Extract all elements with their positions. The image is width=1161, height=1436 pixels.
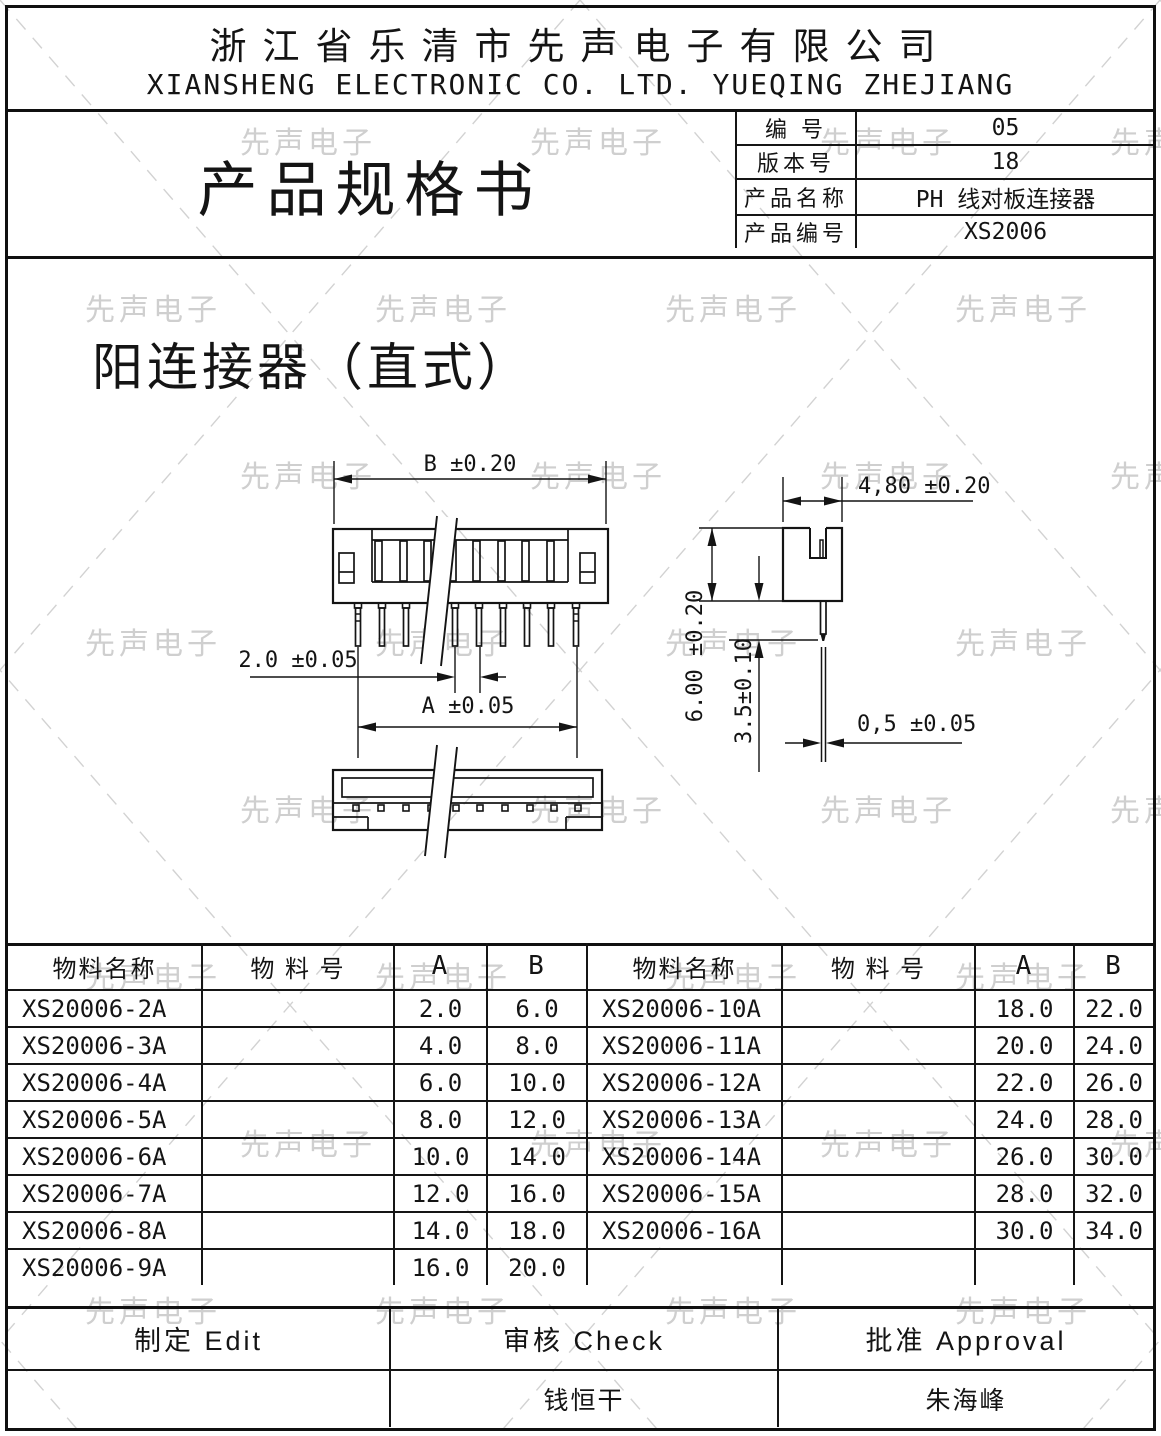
table-row: XS20006-5A8.012.0XS20006-13A24.028.0 [8,1101,1153,1138]
part-b-cell: 8.0 [487,1027,587,1064]
table-row: XS20006-3A4.08.0XS20006-11A20.024.0 [8,1027,1153,1064]
pin-contacts [353,805,581,811]
part-pn-cell [202,990,394,1027]
part-b-cell: 12.0 [487,1101,587,1138]
front-view [333,516,608,666]
part-a-cell: 28.0 [975,1175,1074,1212]
part-pn-cell [202,1138,394,1175]
part-b-cell: 16.0 [487,1175,587,1212]
part-a-cell: 30.0 [975,1212,1074,1249]
approval-signature: 朱海峰 [778,1370,1153,1427]
edit-signature [8,1370,390,1427]
part-name-cell: XS20006-7A [8,1175,202,1212]
dim-pitch: 2.0 ±0.05 [238,648,357,673]
dim-side-height: 6.00 ±0.20 [683,590,708,722]
table-row: 版本号 18 [736,145,1154,179]
part-b-cell: 20.0 [487,1249,587,1285]
part-name-cell [587,1249,782,1285]
part-name-cell: XS20006-12A [587,1064,782,1101]
pin-lead [822,647,826,762]
drawing-section-title: 阳连接器（直式） [92,326,532,400]
part-name-cell: XS20006-6A [8,1138,202,1175]
part-name-cell: XS20006-14A [587,1138,782,1175]
part-b-cell: 22.0 [1074,990,1153,1027]
part-pn-cell [202,1027,394,1064]
approval-label: 批准 Approval [778,1308,1153,1370]
col-header-b: B [1074,943,1153,990]
part-a-cell: 24.0 [975,1101,1074,1138]
table-row: XS20006-6A10.014.0XS20006-14A26.030.0 [8,1138,1153,1175]
table-row: 制定 Edit 审核 Check 批准 Approval [8,1308,1153,1370]
part-name-cell: XS20006-11A [587,1027,782,1064]
table-row: XS20006-9A16.020.0 [8,1249,1153,1285]
dim-pin-width: 0,5 ±0.05 [857,712,976,737]
document-title: 产品规格书 [150,142,590,229]
part-pn-cell [782,1175,975,1212]
part-a-cell: 10.0 [394,1138,487,1175]
part-b-cell [1074,1249,1153,1285]
part-pn-cell [202,1101,394,1138]
table-row: XS20006-2A2.06.0XS20006-10A18.022.0 [8,990,1153,1027]
part-a-cell [975,1249,1074,1285]
part-b-cell: 6.0 [487,990,587,1027]
part-name-cell: XS20006-2A [8,990,202,1027]
contact-slots [375,541,554,581]
part-pn-cell [202,1175,394,1212]
part-b-cell: 32.0 [1074,1175,1153,1212]
part-a-cell: 16.0 [394,1249,487,1285]
part-b-cell: 14.0 [487,1138,587,1175]
part-pn-cell [782,1249,975,1285]
info-value: 05 [856,112,1154,145]
info-value: 18 [856,145,1154,179]
dim-pin-length: 3.5±0.10 [732,638,757,744]
table-row: 编 号 05 [736,112,1154,145]
part-a-cell: 4.0 [394,1027,487,1064]
spec-sheet-page: 先声电子先声电子先声电子先声电子先声电子先声电子先声电子先声电子先声电子先声电子… [0,0,1161,1436]
part-pn-cell [782,1101,975,1138]
part-name-cell: XS20006-5A [8,1101,202,1138]
approval-footer-table: 制定 Edit 审核 Check 批准 Approval 钱恒干 朱海峰 [8,1308,1153,1427]
col-header-b: B [487,943,587,990]
part-name-cell: XS20006-16A [587,1212,782,1249]
part-name-cell: XS20006-13A [587,1101,782,1138]
table-row: 产品编号 XS2006 [736,215,1154,248]
col-header-name: 物料名称 [8,943,202,990]
part-a-cell: 20.0 [975,1027,1074,1064]
company-name-cn: 浙江省乐清市先声电子有限公司 [0,16,1161,70]
part-name-cell: XS20006-8A [8,1212,202,1249]
side-latch-tabs [339,553,595,583]
info-value: XS2006 [856,215,1154,248]
part-a-cell: 18.0 [975,990,1074,1027]
parts-tbody: XS20006-2A2.06.0XS20006-10A18.022.0XS200… [8,990,1153,1285]
document-info-table: 编 号 05 版本号 18 产品名称 PH 线对板连接器 产品编号 XS2006 [735,112,1154,248]
dim-side-width: 4,80 ±0.20 [858,474,990,499]
table-row: 钱恒干 朱海峰 [8,1370,1153,1427]
info-label: 产品编号 [736,215,856,248]
side-view [783,526,842,763]
part-pn-cell [782,1212,975,1249]
check-signature: 钱恒干 [390,1370,778,1427]
part-a-cell: 22.0 [975,1064,1074,1101]
part-pn-cell [782,1027,975,1064]
dim-a: A ±0.05 [422,694,515,719]
divider-header [8,256,1153,259]
table-row: XS20006-4A6.010.0XS20006-12A22.026.0 [8,1064,1153,1101]
info-label: 版本号 [736,145,856,179]
part-b-cell: 18.0 [487,1212,587,1249]
part-pn-cell [202,1064,394,1101]
part-name-cell: XS20006-9A [8,1249,202,1285]
parts-dimension-table: 物料名称 物 料 号 A B 物料名称 物 料 号 A B XS20006-2A… [8,943,1153,1285]
dim-b: B ±0.20 [424,452,517,477]
col-header-a: A [975,943,1074,990]
info-value: PH 线对板连接器 [856,179,1154,215]
col-header-pn: 物 料 号 [782,943,975,990]
part-b-cell: 10.0 [487,1064,587,1101]
part-a-cell: 8.0 [394,1101,487,1138]
check-label: 审核 Check [390,1308,778,1370]
pins [355,608,579,646]
break-gap [421,516,457,666]
part-pn-cell [782,1064,975,1101]
col-header-pn: 物 料 号 [202,943,394,990]
part-b-cell: 28.0 [1074,1101,1153,1138]
part-name-cell: XS20006-4A [8,1064,202,1101]
part-b-cell: 30.0 [1074,1138,1153,1175]
part-name-cell: XS20006-3A [8,1027,202,1064]
part-a-cell: 6.0 [394,1064,487,1101]
part-pn-cell [202,1249,394,1285]
table-row: 产品名称 PH 线对板连接器 [736,179,1154,215]
col-header-a: A [394,943,487,990]
part-a-cell: 26.0 [975,1138,1074,1175]
break-gap [425,747,457,856]
info-label: 产品名称 [736,179,856,215]
edit-label: 制定 Edit [8,1308,390,1370]
table-header-row: 物料名称 物 料 号 A B 物料名称 物 料 号 A B [8,943,1153,990]
col-header-name: 物料名称 [587,943,782,990]
part-name-cell: XS20006-10A [587,990,782,1027]
part-name-cell: XS20006-15A [587,1175,782,1212]
part-a-cell: 12.0 [394,1175,487,1212]
part-pn-cell [202,1212,394,1249]
company-name-en: XIANSHENG ELECTRONIC CO. LTD. YUEQING ZH… [0,68,1161,101]
info-label: 编 号 [736,112,856,145]
part-b-cell: 34.0 [1074,1212,1153,1249]
part-b-cell: 26.0 [1074,1064,1153,1101]
part-b-cell: 24.0 [1074,1027,1153,1064]
table-row: XS20006-7A12.016.0XS20006-15A28.032.0 [8,1175,1153,1212]
part-pn-cell [782,990,975,1027]
top-view [333,745,602,858]
part-a-cell: 2.0 [394,990,487,1027]
part-pn-cell [782,1138,975,1175]
table-row: XS20006-8A14.018.0XS20006-16A30.034.0 [8,1212,1153,1249]
part-a-cell: 14.0 [394,1212,487,1249]
